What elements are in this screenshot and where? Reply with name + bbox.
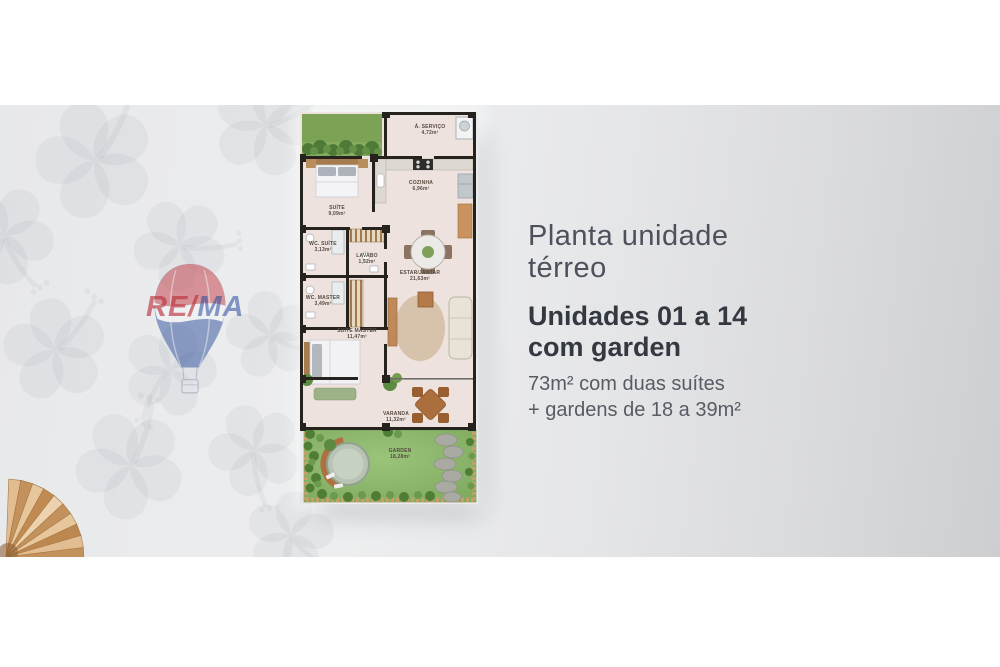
garden-area [304,427,477,502]
wc-suite-fixtures [306,230,344,270]
kitchen-cabinet [458,204,472,238]
remax-balloon-watermark-icon [149,260,231,402]
wardrobe [350,280,363,327]
seashell-icon [0,473,96,557]
sofa-icon [449,297,472,359]
units-subtitle: Unidades 01 a 14 com garden [528,301,858,364]
unit-description: 73m² com duas suítes + gardens de 18 a 3… [528,371,858,423]
fridge-icon [458,174,473,198]
page-title: Planta unidade térreo [528,220,858,285]
floor-plan: Á. SERVIÇO4,72m² COZINHA6,96m² SUÍTE9,09… [300,112,478,504]
remax-watermark-text: RE/MA [146,291,244,324]
washing-machine-icon [456,117,473,139]
wc-master-fixtures [306,282,344,318]
varanda-table-icon [412,387,449,423]
tv-sideboard [388,298,397,346]
pouf-icon [418,292,433,307]
stove-icon [413,159,433,170]
photo-background: Á. SERVIÇO4,72m² COZINHA6,96m² SUÍTE9,09… [0,105,1000,557]
front-garden-strip [302,114,382,156]
wardrobe [350,229,384,242]
bedroom-mat [314,388,356,400]
suite-bed-icon [306,159,368,197]
info-panel: Planta unidade térreo Unidades 01 a 14 c… [528,220,858,423]
lavabo-fixtures [362,252,378,272]
dining-table-icon [404,230,452,274]
slide: Á. SERVIÇO4,72m² COZINHA6,96m² SUÍTE9,09… [0,0,1000,667]
floor-plan-graphics [300,112,478,504]
